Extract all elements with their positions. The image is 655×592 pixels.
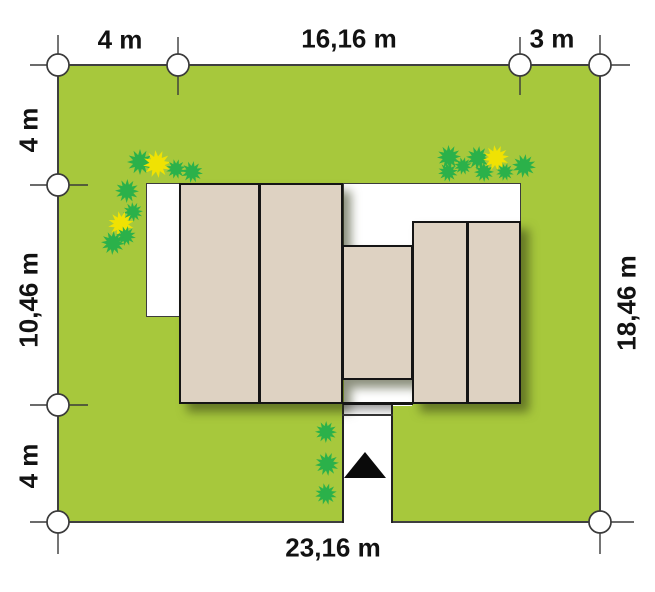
dimension-label-top-setback-right: 3 m	[530, 24, 575, 55]
courtyard-paving	[343, 183, 521, 246]
terrace-paving	[146, 183, 180, 317]
dimension-label-left-setback-top: 4 m	[14, 108, 45, 153]
dimension-label-house-width: 16,16 m	[301, 24, 396, 55]
entrance-arrow-icon	[344, 452, 386, 478]
site-plan-canvas: 4 m 16,16 m 3 m 4 m 10,46 m 4 m 18,46 m …	[0, 0, 655, 592]
dimension-label-left-setback-bottom: 4 m	[14, 444, 45, 489]
dimension-label-plot-depth: 18,46 m	[612, 255, 643, 350]
plot-boundary	[57, 64, 601, 523]
driveway-gate-line	[342, 414, 393, 416]
dimension-label-house-depth: 10,46 m	[14, 252, 45, 347]
dimension-label-top-setback-left: 4 m	[98, 25, 143, 56]
dimension-label-plot-width: 23,16 m	[285, 533, 380, 564]
